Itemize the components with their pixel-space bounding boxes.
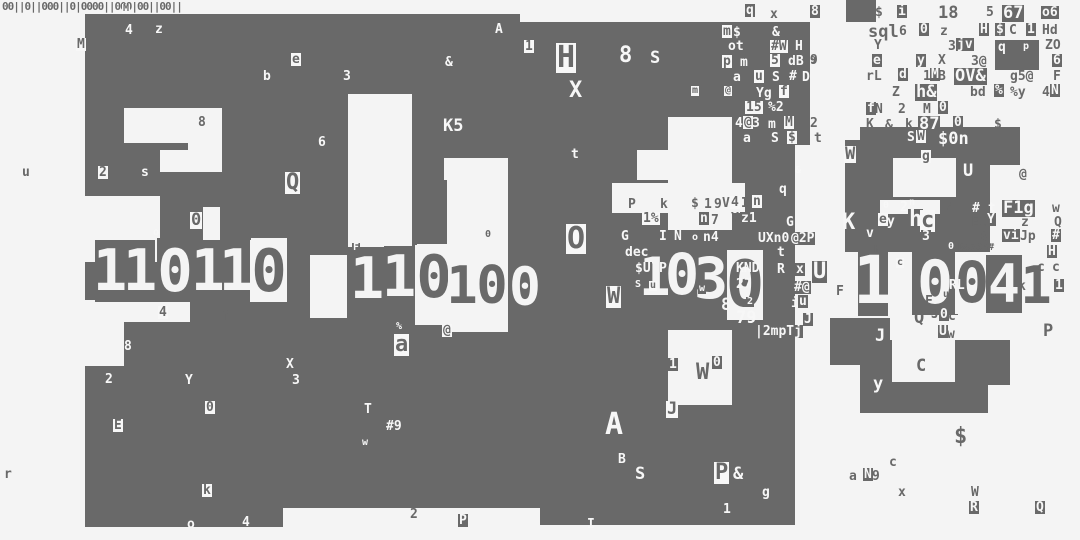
- noise-glyph: dB: [788, 55, 804, 68]
- noise-glyph: 18: [938, 5, 958, 22]
- noise-glyph: 1: [668, 358, 678, 371]
- noise-glyph: W: [971, 486, 979, 499]
- noise-glyph: Q: [914, 310, 924, 327]
- noise-glyph: o: [153, 228, 159, 238]
- noise-glyph: #: [789, 70, 797, 83]
- noise-glyph: 6: [1052, 54, 1062, 67]
- noise-glyph: @2P: [790, 232, 815, 245]
- noise-glyph: x: [795, 263, 805, 276]
- noise-glyph: 0: [938, 101, 948, 114]
- noise-glyph: g: [762, 486, 770, 499]
- noise-glyph: %: [994, 84, 1004, 97]
- noise-glyph: E: [113, 419, 123, 432]
- noise-glyph: J: [875, 328, 885, 345]
- noise-cutout: [444, 158, 508, 180]
- noise-glyph: 2: [104, 373, 114, 386]
- noise-glyph: m: [722, 25, 732, 38]
- noise-glyph: J: [803, 313, 813, 326]
- noise-cutout: [540, 532, 795, 540]
- noise-glyph: n: [752, 195, 762, 208]
- noise-glyph: %y: [1010, 86, 1026, 99]
- noise-glyph: 0: [947, 242, 955, 252]
- noise-glyph: 0: [953, 116, 963, 129]
- noise-glyph: z: [155, 23, 163, 36]
- noise-glyph: 1: [723, 503, 731, 516]
- noise-glyph: 8: [721, 297, 731, 314]
- noise-glyph: S: [649, 50, 661, 67]
- noise-glyph: K: [842, 212, 855, 234]
- noise-glyph: 0: [205, 401, 215, 414]
- noise-glyph: @: [724, 86, 732, 96]
- noise-glyph: a: [849, 470, 857, 483]
- noise-glyph: d: [898, 68, 908, 81]
- noise-glyph: H: [1047, 245, 1057, 258]
- noise-glyph: I: [587, 518, 595, 531]
- noise-glyph: R: [776, 263, 786, 276]
- noise-glyph: p: [1022, 42, 1030, 52]
- noise-glyph: 2: [746, 297, 754, 307]
- noise-glyph: o: [692, 233, 698, 243]
- noise-glyph: V: [722, 197, 730, 210]
- noise-glyph: #W: [770, 40, 788, 53]
- noise-glyph: 8: [124, 340, 132, 353]
- noise-glyph: t: [571, 148, 579, 161]
- noise-glyph: rL: [866, 70, 882, 83]
- noise-glyph: 5: [986, 6, 994, 19]
- noise-glyph: P: [1043, 323, 1053, 340]
- noise-glyph: 9: [714, 198, 722, 211]
- noise-glyph: q: [779, 183, 787, 196]
- noise-glyph: %2: [768, 101, 784, 114]
- noise-glyph: k: [202, 484, 212, 497]
- noise-glyph: y: [887, 215, 895, 228]
- noise-glyph: 27: [736, 278, 752, 291]
- noise-glyph: n: [699, 212, 709, 225]
- noise-glyph: Q: [1035, 501, 1045, 514]
- glitch-canvas: 00||0||000||0|0000||000|00||00|| 1101101…: [0, 0, 1080, 540]
- noise-glyph: H: [556, 43, 576, 73]
- noise-glyph: m: [768, 118, 776, 131]
- noise-glyph: sql: [868, 24, 899, 41]
- big-digit: 1: [448, 258, 476, 314]
- big-digit: 4: [986, 255, 1022, 313]
- noise-block: [846, 0, 876, 22]
- noise-glyph: u: [22, 166, 30, 179]
- noise-glyph: 0: [190, 212, 202, 229]
- noise-glyph: 0: [485, 230, 491, 240]
- noise-glyph: 4: [947, 202, 955, 215]
- noise-cutout: [310, 255, 347, 318]
- noise-glyph: W: [916, 130, 926, 143]
- noise-glyph: z1: [740, 212, 758, 225]
- noise-glyph: KND: [736, 262, 759, 275]
- noise-glyph: k: [660, 198, 668, 211]
- noise-glyph: g: [921, 150, 931, 163]
- noise-glyph: Z: [892, 86, 900, 99]
- noise-glyph: y: [916, 54, 926, 67]
- noise-cutout: [348, 94, 412, 247]
- noise-glyph: $U: [634, 262, 652, 275]
- noise-glyph: Q: [285, 172, 300, 194]
- noise-glyph: 2: [810, 117, 818, 130]
- noise-glyph: r: [4, 468, 12, 481]
- noise-glyph: 9: [872, 470, 880, 483]
- noise-glyph: a: [743, 132, 751, 145]
- noise-glyph: Y: [986, 213, 996, 226]
- noise-glyph: 15: [745, 101, 763, 114]
- noise-glyph: Y: [874, 39, 882, 52]
- noise-glyph: g5@: [1010, 70, 1033, 83]
- noise-glyph: Do70h#: [958, 243, 994, 253]
- noise-cutout: [124, 108, 222, 143]
- noise-glyph: U: [812, 261, 827, 283]
- noise-glyph: F: [1053, 70, 1061, 83]
- noise-glyph: A: [605, 410, 623, 440]
- noise-glyph: dec: [625, 246, 648, 259]
- noise-glyph: #: [1051, 229, 1061, 242]
- noise-glyph: O: [566, 224, 586, 254]
- noise-glyph: &: [885, 119, 893, 132]
- noise-glyph: c: [1052, 261, 1060, 274]
- noise-glyph: z: [940, 25, 948, 38]
- noise-glyph: c: [1037, 261, 1045, 274]
- noise-glyph: B: [938, 70, 946, 83]
- noise-glyph: UXn0: [758, 232, 789, 245]
- noise-glyph: u: [798, 295, 808, 308]
- noise-glyph: K: [866, 118, 874, 131]
- noise-glyph: 3: [948, 40, 956, 53]
- noise-glyph: x: [770, 8, 778, 21]
- big-digit: 1: [95, 240, 125, 302]
- noise-glyph: H: [979, 23, 989, 36]
- noise-glyph: W: [606, 286, 621, 308]
- noise-glyph: $: [995, 23, 1005, 36]
- noise-glyph: J: [931, 308, 939, 321]
- noise-glyph: w: [362, 438, 368, 448]
- noise-glyph: &: [445, 56, 453, 69]
- noise-glyph: 4: [735, 117, 743, 130]
- noise-glyph: c: [896, 258, 904, 268]
- noise-glyph: $0n: [937, 131, 970, 148]
- noise-glyph: C: [916, 358, 926, 375]
- noise-glyph: 2: [98, 166, 108, 179]
- noise-glyph: P: [628, 198, 636, 211]
- noise-glyph: u: [943, 290, 949, 300]
- big-digit: 1: [352, 248, 382, 310]
- noise-glyph: @: [1019, 168, 1027, 181]
- noise-glyph: EI: [971, 216, 987, 229]
- noise-glyph: x: [898, 486, 906, 499]
- noise-glyph: 1: [524, 40, 534, 53]
- noise-glyph: 8: [198, 116, 206, 129]
- noise-glyph: h&: [915, 84, 937, 101]
- big-digit: 0: [477, 258, 507, 314]
- noise-glyph: M: [76, 38, 86, 51]
- noise-glyph: $: [691, 197, 699, 210]
- noise-glyph: |2mpTj: [754, 325, 803, 338]
- noise-glyph: f: [221, 310, 229, 323]
- noise-glyph: #@: [793, 281, 811, 294]
- noise-glyph: 3: [292, 374, 300, 387]
- noise-glyph: ZO: [1045, 39, 1061, 52]
- noise-glyph: 9: [810, 54, 818, 67]
- noise-cutout: [637, 150, 668, 180]
- noise-glyph: 5: [770, 54, 780, 67]
- noise-glyph: F: [352, 243, 360, 253]
- noise-glyph: 0: [712, 356, 722, 369]
- noise-glyph: N: [674, 230, 682, 243]
- noise-glyph: jv: [956, 38, 974, 51]
- noise-glyph: S: [635, 466, 645, 483]
- noise-glyph: S: [772, 71, 780, 84]
- noise-glyph: 7: [711, 214, 719, 227]
- noise-glyph: h: [874, 245, 880, 255]
- noise-glyph: ot: [728, 40, 744, 53]
- noise-glyph: N: [1050, 84, 1060, 97]
- noise-glyph: %: [396, 322, 402, 332]
- noise-glyph: T: [364, 403, 372, 416]
- noise-glyph: P: [714, 462, 729, 484]
- noise-glyph: z: [1021, 216, 1029, 229]
- noise-glyph: M: [122, 4, 130, 14]
- noise-glyph: Y: [731, 212, 739, 225]
- noise-glyph: 6: [899, 25, 907, 38]
- noise-glyph: B: [618, 453, 626, 466]
- noise-glyph: o: [187, 518, 195, 531]
- noise-cutout: [203, 207, 220, 240]
- noise-glyph: H: [795, 40, 803, 53]
- noise-glyph: Yg: [756, 87, 772, 100]
- noise-glyph: &: [795, 166, 801, 176]
- noise-glyph: I: [659, 230, 667, 243]
- noise-cutout: [160, 150, 188, 172]
- noise-glyph: e: [872, 54, 882, 67]
- noise-glyph: bd: [970, 86, 986, 99]
- noise-glyph: S: [907, 131, 915, 144]
- noise-glyph: N: [875, 103, 883, 116]
- noise-glyph: M: [784, 116, 794, 129]
- noise-glyph: P: [458, 514, 468, 527]
- noise-glyph: @: [442, 324, 452, 337]
- big-digit: 0: [668, 244, 696, 306]
- noise-glyph: 4: [158, 306, 168, 319]
- noise-glyph: $: [954, 426, 967, 448]
- noise-glyph: t: [777, 246, 785, 259]
- noise-glyph: $: [787, 131, 797, 144]
- noise-glyph: w: [698, 284, 706, 294]
- big-digit: 1: [194, 240, 222, 302]
- noise-glyph: 4: [242, 516, 250, 529]
- noise-glyph: e: [291, 53, 301, 66]
- noise-glyph: a: [394, 334, 409, 356]
- noise-glyph: 2: [898, 103, 906, 116]
- noise-glyph: 3: [921, 230, 931, 243]
- noise-glyph: Y: [185, 374, 193, 387]
- noise-glyph: n4: [703, 231, 719, 244]
- big-digit: 1: [125, 240, 155, 302]
- noise-glyph: 4: [125, 24, 133, 37]
- noise-glyph: 8: [810, 5, 820, 18]
- noise-glyph: $: [875, 6, 883, 19]
- noise-glyph: P: [659, 262, 667, 275]
- noise-glyph: m: [740, 56, 748, 69]
- noise-glyph: S: [635, 280, 641, 290]
- noise-glyph: G: [786, 216, 794, 229]
- big-digit: 1: [222, 240, 250, 302]
- noise-glyph: y: [873, 376, 883, 393]
- noise-glyph: 2: [900, 201, 908, 214]
- big-digit: 1: [1022, 258, 1050, 314]
- noise-glyph: 1: [704, 198, 712, 211]
- noise-glyph: i: [897, 5, 907, 18]
- noise-glyph: S: [771, 132, 779, 145]
- noise-glyph: X: [569, 80, 582, 102]
- noise-glyph: vi: [1002, 229, 1020, 242]
- big-digit: 0: [157, 238, 193, 302]
- noise-glyph: v: [865, 227, 875, 240]
- noise-glyph: J: [666, 401, 678, 418]
- noise-cutout: [520, 0, 540, 22]
- noise-glyph: &: [772, 26, 780, 39]
- noise-glyph: 4: [1042, 86, 1050, 99]
- noise-glyph: c: [948, 310, 956, 323]
- noise-glyph: 6: [318, 136, 326, 149]
- noise-glyph: Hd: [1042, 24, 1058, 37]
- noise-glyph: 8: [619, 45, 632, 67]
- noise-glyph: u: [649, 281, 657, 291]
- big-digit: 0: [251, 238, 287, 302]
- noise-cutout: [188, 143, 222, 172]
- noise-glyph: #: [972, 202, 980, 215]
- noise-glyph: m: [691, 86, 699, 96]
- noise-glyph: u: [754, 70, 764, 83]
- noise-glyph: o6: [1041, 6, 1059, 19]
- noise-glyph: F: [836, 285, 844, 298]
- binary-header-string: 00||0||000||0|0000||000|00||00||: [2, 1, 182, 12]
- noise-glyph: b: [263, 70, 271, 83]
- noise-glyph: W: [696, 362, 709, 384]
- noise-glyph: &: [733, 466, 743, 483]
- noise-glyph: p: [722, 55, 732, 68]
- big-digit: 0: [509, 258, 541, 316]
- noise-glyph: 1%: [642, 212, 660, 225]
- noise-glyph: 1: [1054, 279, 1064, 292]
- noise-glyph: 4: [730, 196, 740, 209]
- noise-glyph: w: [1052, 202, 1060, 215]
- noise-glyph: D: [802, 71, 810, 84]
- noise-glyph: 1: [1026, 23, 1036, 36]
- noise-glyph: 0: [883, 201, 889, 211]
- big-digit: 1: [858, 244, 888, 316]
- noise-glyph: Jp: [1020, 230, 1036, 243]
- noise-glyph: s: [140, 166, 150, 179]
- noise-glyph: 2: [410, 508, 418, 521]
- noise-glyph: F: [925, 295, 933, 308]
- noise-glyph: #9: [386, 420, 402, 433]
- noise-glyph: a: [733, 71, 741, 84]
- noise-glyph: w: [947, 328, 955, 341]
- noise-glyph: t: [814, 132, 822, 145]
- noise-glyph: A: [495, 23, 503, 36]
- noise-glyph: R: [969, 501, 979, 514]
- noise-glyph: X: [938, 54, 946, 67]
- noise-glyph: F1g: [1002, 200, 1035, 217]
- noise-glyph: q: [745, 4, 755, 17]
- noise-glyph: 67: [1002, 5, 1024, 22]
- noise-glyph: 0: [919, 23, 929, 36]
- noise-glyph: 3: [343, 70, 351, 83]
- noise-glyph: G: [621, 230, 629, 243]
- big-digit: 1: [384, 246, 414, 308]
- noise-glyph: I: [741, 197, 749, 210]
- noise-glyph: q: [997, 41, 1007, 54]
- noise-glyph: f: [779, 85, 789, 98]
- noise-glyph: X: [286, 358, 294, 371]
- noise-glyph: $: [733, 26, 741, 39]
- noise-glyph: U: [962, 163, 974, 180]
- noise-glyph: W: [844, 146, 856, 163]
- noise-glyph: K5: [443, 118, 463, 135]
- noise-cutout: [60, 300, 124, 366]
- noise-glyph: RL: [949, 279, 965, 292]
- noise-glyph: $: [994, 118, 1002, 131]
- noise-glyph: OV&: [954, 68, 987, 85]
- noise-glyph: c: [889, 456, 897, 469]
- noise-glyph: 3: [752, 117, 760, 130]
- noise-glyph: C: [1009, 24, 1017, 37]
- noise-glyph: k: [1018, 280, 1026, 293]
